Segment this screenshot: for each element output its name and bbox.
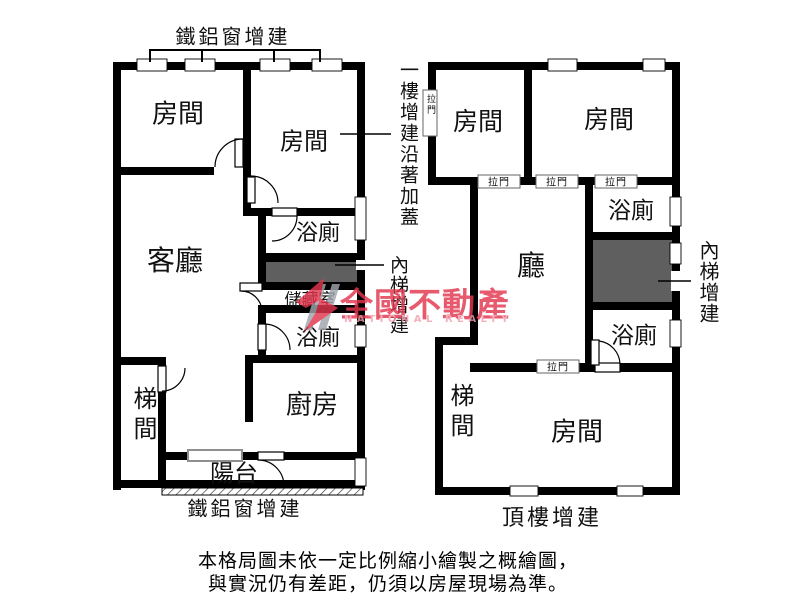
window-addition-bracket — [150, 50, 320, 62]
room-label-right-top-left: 房間 — [453, 102, 503, 138]
caption-left-bottom: 鐵鋁窗增建 — [188, 493, 303, 522]
floorplan-image: 房間 房間 客廳 浴廁 儲藏室 浴廁 廚房 梯間 陽台 鐵鋁窗增建 鐵鋁窗增建 … — [0, 0, 800, 615]
room-label-balcony: 陽台 — [210, 454, 258, 489]
room-label-living: 客廳 — [147, 239, 203, 279]
sliding-door-label-vertical: 拉門 — [424, 94, 437, 116]
room-label-right-bottom: 房間 — [551, 412, 603, 449]
sliding-door-label: 拉門 — [605, 174, 627, 189]
room-label-left-bath-upper: 浴廁 — [296, 215, 340, 247]
annotation-first-floor-addition: 一樓增建沿著加蓋 — [395, 60, 422, 228]
sliding-door-label: 拉門 — [546, 174, 568, 189]
room-label-right-bath-upper: 浴廁 — [608, 191, 654, 225]
sliding-door-label: 拉門 — [547, 359, 569, 374]
caption-left-top: 鐵鋁窗增建 — [176, 21, 291, 50]
room-label-right-top-right: 房間 — [584, 100, 634, 136]
room-label-hall: 廳 — [517, 244, 545, 284]
watermark-brand-en-text: NATIONAL REALTY — [344, 314, 513, 325]
room-label-left-top-right: 房間 — [280, 122, 328, 157]
disclaimer-line2: 與實況仍有差距，仍須以房屋現場為準。 — [208, 569, 568, 596]
room-label-right-stairwell: 梯間 — [443, 383, 478, 443]
watermark: 全國不動產 NATIONAL REALTY — [294, 276, 510, 332]
annotation-inner-stairs-right: 內梯增建 — [694, 240, 723, 324]
caption-right-bottom: 頂樓增建 — [502, 500, 602, 532]
room-label-left-top-left: 房間 — [152, 94, 204, 131]
sliding-door-label: 拉門 — [488, 174, 510, 189]
room-label-kitchen: 廚房 — [286, 385, 338, 422]
room-label-left-stairwell: 梯間 — [126, 386, 161, 446]
realty-logo-icon — [294, 278, 340, 332]
room-label-right-bath-lower: 浴廁 — [611, 316, 657, 350]
right-plan-inner-stairs-area — [593, 240, 672, 302]
